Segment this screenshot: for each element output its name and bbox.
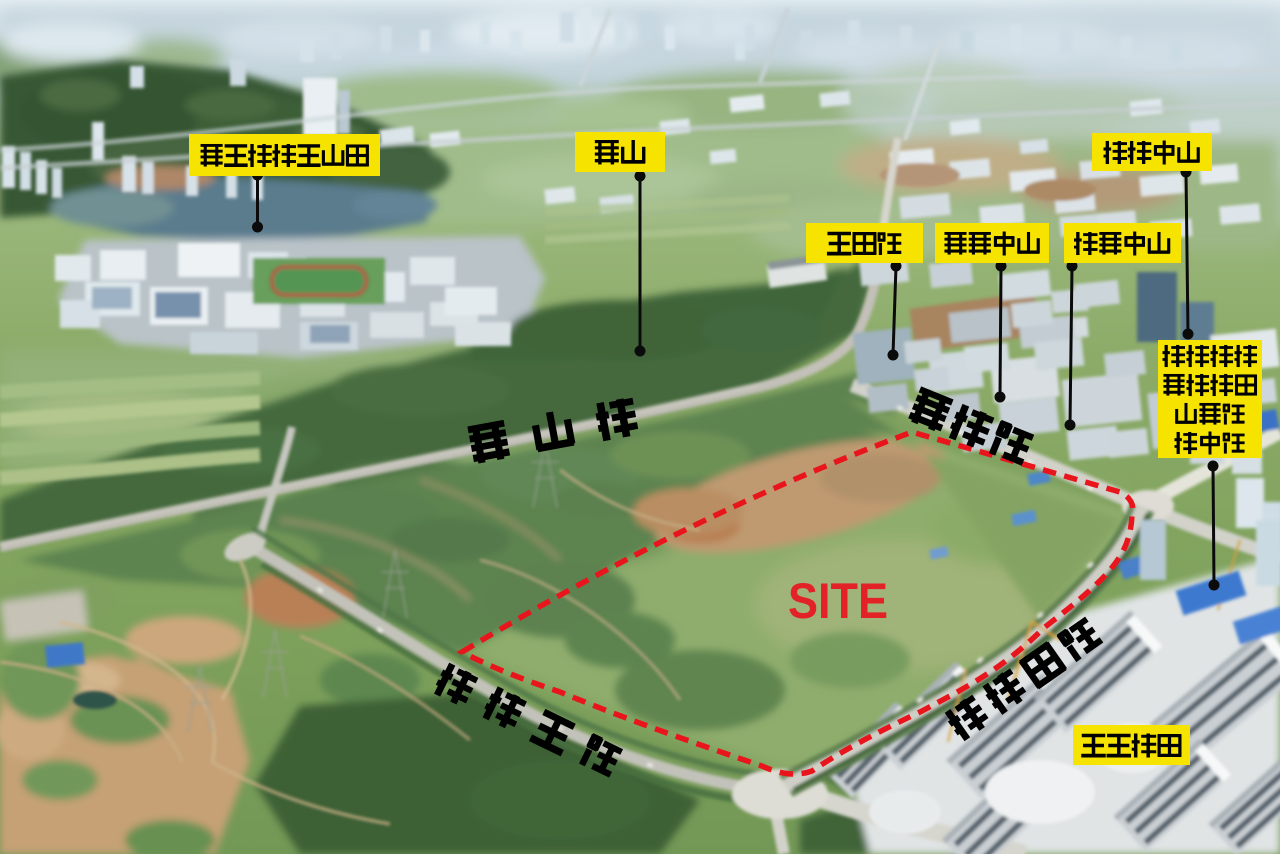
svg-text:SITE: SITE — [788, 573, 888, 629]
